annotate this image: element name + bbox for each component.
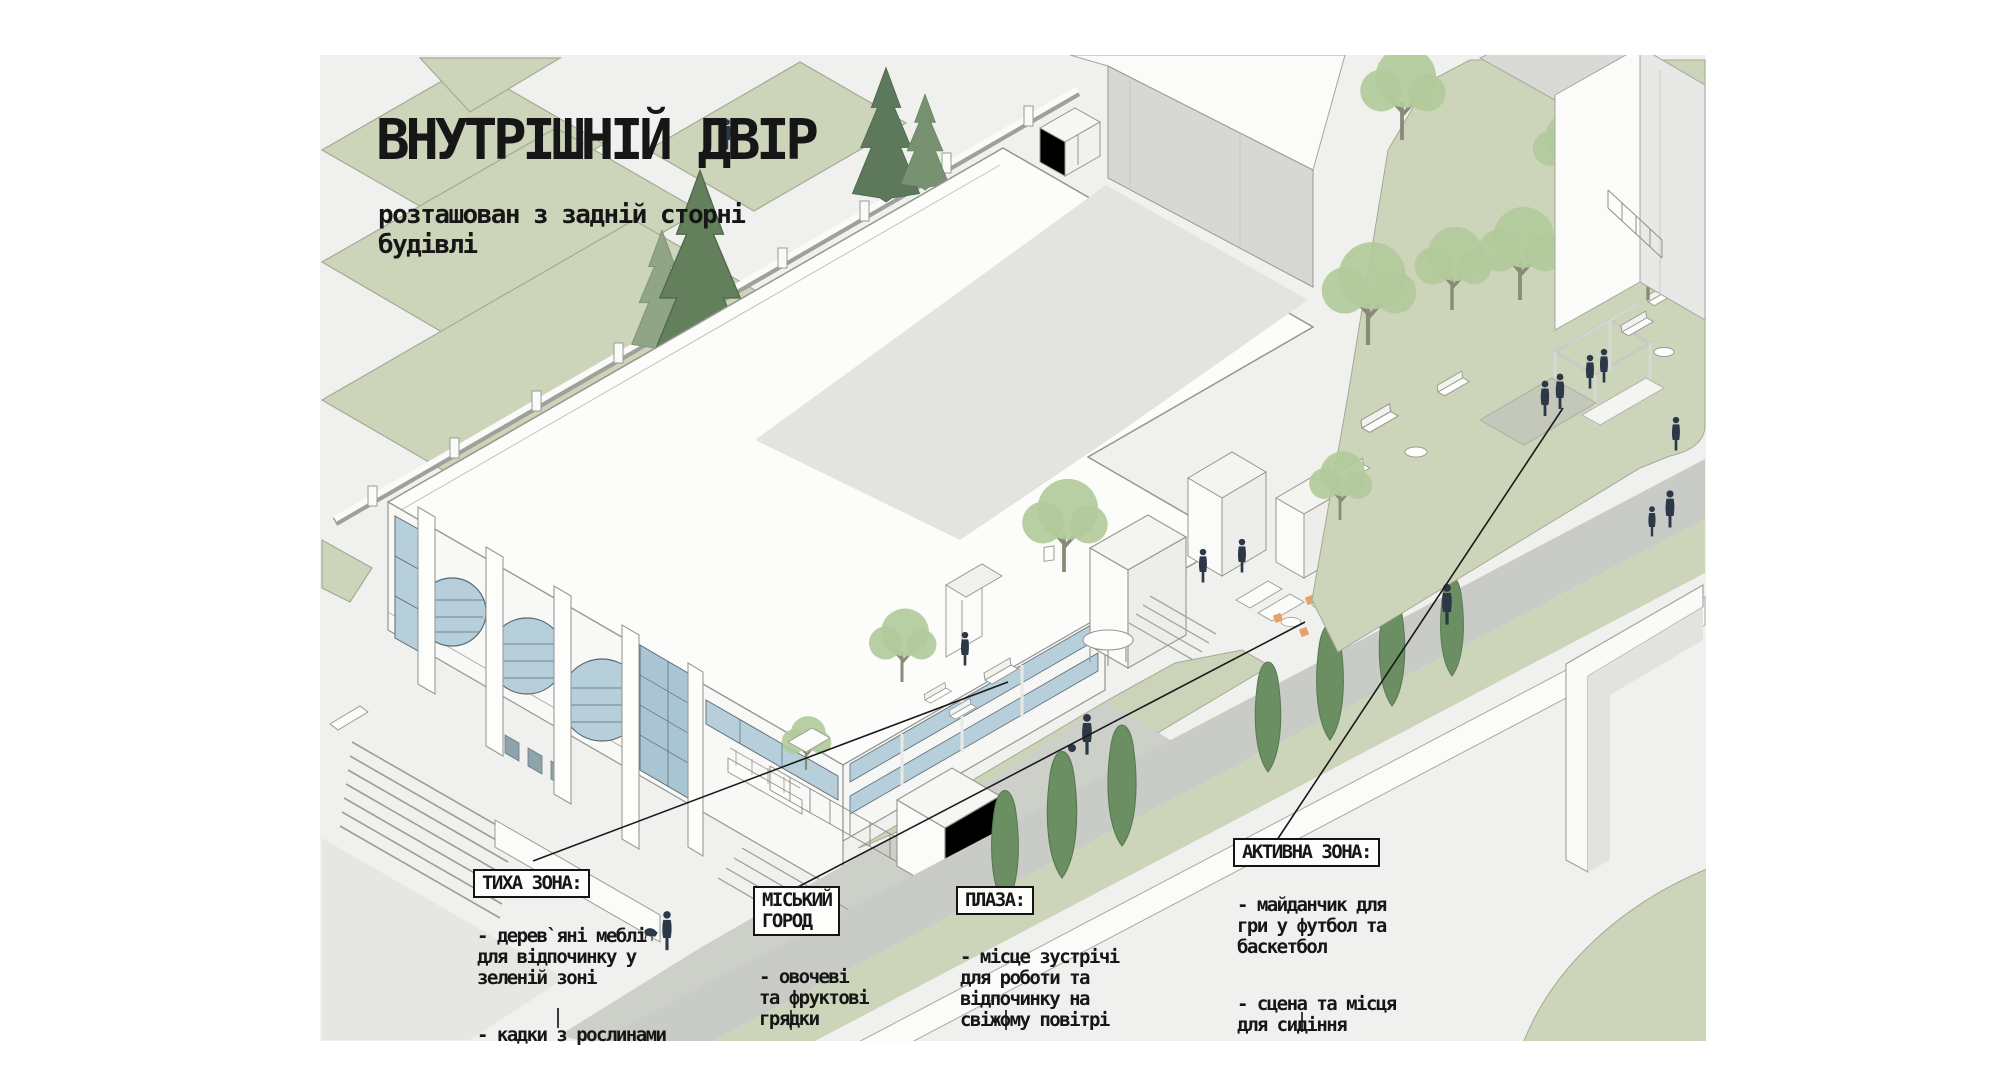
callout-box-quiet-zone: ТИХА ЗОНА: xyxy=(473,869,590,898)
callout-item: - дерев`яні меблі для відпочинку у зелен… xyxy=(477,926,667,989)
callout-item: - місце зустрічі для роботи та відпочинк… xyxy=(960,947,1150,1031)
callout-items-quiet-zone: - дерев`яні меблі для відпочинку у зелен… xyxy=(477,905,667,1072)
callout-items-active-zone: - майданчик для гри у футбол та баскетбо… xyxy=(1237,874,1427,1072)
callout-box-active-zone: АКТИВНА ЗОНА: xyxy=(1233,838,1380,867)
callout-item: - майданчик для гри у футбол та баскетбо… xyxy=(1237,895,1427,958)
page-title: ВНУТРІШНІЙ ДВІР xyxy=(376,112,815,170)
trash-bin xyxy=(1044,546,1054,561)
callout-box-city-garden: МІСЬКИЙ ГОРОД xyxy=(753,886,840,936)
callout-box-plaza: ПЛАЗА: xyxy=(956,886,1034,915)
callout-item: - овочеві та фруктові грядки xyxy=(759,967,909,1030)
round-table xyxy=(1083,630,1133,666)
callout-item: - сцена та місця для сидіння xyxy=(1237,994,1427,1036)
callout-items-plaza: - місце зустрічі для роботи та відпочинк… xyxy=(960,926,1150,1067)
presentation-board: { "header": { "title": "ВНУТРІШНІЙ ДВІР"… xyxy=(0,0,2000,1072)
callout-item: - кадки з рослинами xyxy=(477,1025,667,1046)
callout-items-city-garden: - овочеві та фруктові грядки xyxy=(759,946,909,1066)
page-subtitle: розташован з задній сторні будівлі xyxy=(378,200,744,260)
